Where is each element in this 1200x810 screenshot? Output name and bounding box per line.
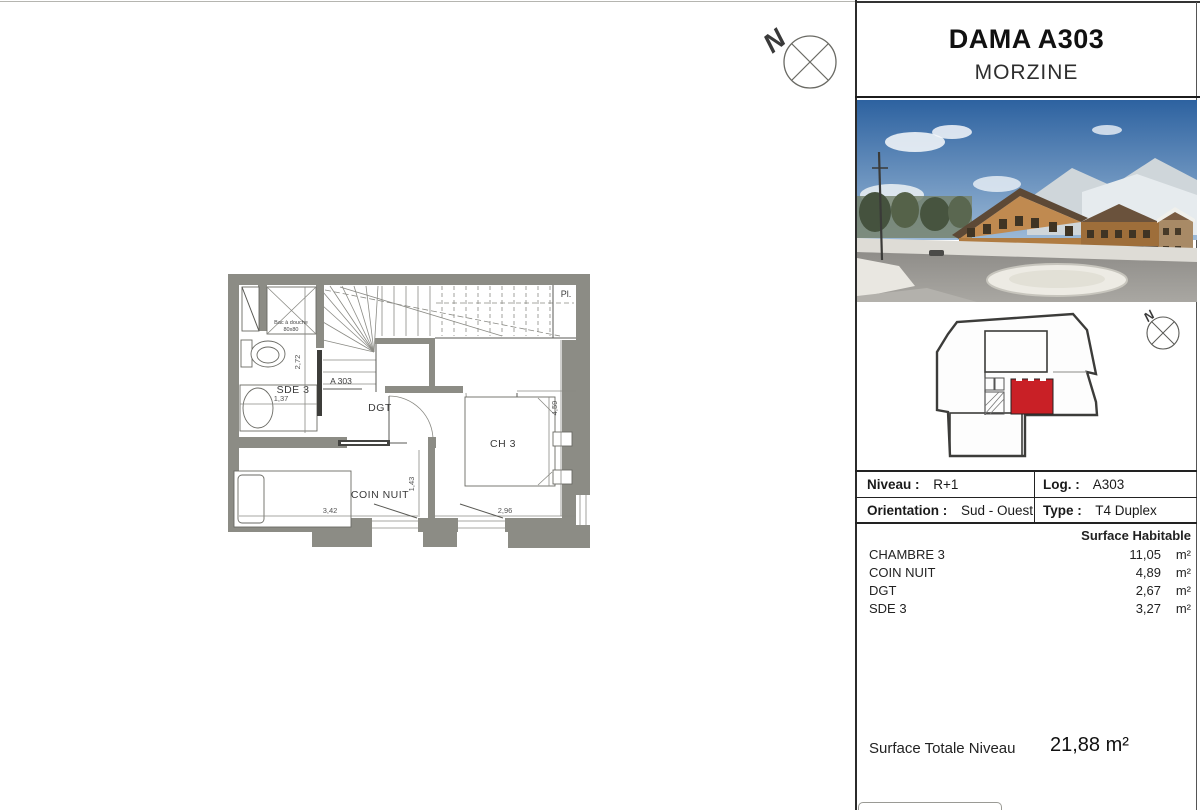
table-row: Niveau : R+1 Log. : A303	[855, 472, 1197, 497]
sheet-subtitle: MORZINE	[857, 61, 1196, 85]
floor-plan: Pl. Bac à douche 80x80 SDE 3 1,37 2,72 A	[210, 258, 610, 558]
shower-label: Bac à douche	[274, 320, 308, 326]
hallway-dgt: A 303 DGT	[317, 350, 433, 440]
room-area: 3,27	[1117, 600, 1161, 618]
room-area: 2,67	[1117, 582, 1161, 600]
unit-door-label: A 303	[330, 376, 352, 386]
site-compass-icon: N	[1141, 307, 1179, 349]
niveau-value: R+1	[933, 477, 958, 492]
room-name: COIN NUIT	[855, 564, 1117, 582]
coin-nuit: COIN NUIT 1,43 3,42	[234, 440, 419, 527]
surface-list: Surface Habitable CHAMBRE 3 11,05 m² COI…	[855, 528, 1195, 618]
room-name: SDE 3	[855, 600, 1117, 618]
room-label-coin-nuit: COIN NUIT	[351, 489, 409, 501]
room-area-unit: m²	[1161, 546, 1195, 564]
door-swing-dgt	[389, 396, 433, 440]
orientation-value: Sud - Ouest	[961, 503, 1033, 518]
surface-list-header: Surface Habitable	[855, 528, 1195, 543]
list-item: COIN NUIT 4,89 m²	[855, 564, 1195, 582]
room-area: 4,89	[1117, 564, 1161, 582]
total-surface-label: Surface Totale Niveau	[869, 740, 1015, 757]
room-area-unit: m²	[1161, 600, 1195, 618]
dim-coin-nuit-width: 3,42	[323, 506, 338, 515]
room-name: CHAMBRE 3	[855, 546, 1117, 564]
entrance-door-leaf	[317, 350, 322, 416]
bathroom-sde3: Bac à douche 80x80 SDE 3 1,37 2,72	[240, 287, 317, 433]
room-label-ch3: CH 3	[490, 438, 516, 450]
nightstand	[553, 432, 572, 446]
room-area-unit: m²	[1161, 564, 1195, 582]
toilet-tank	[241, 340, 252, 367]
niveau-label: Niveau :	[867, 477, 920, 492]
sheet-title: DAMA A303	[857, 24, 1196, 55]
list-item: CHAMBRE 3 11,05 m²	[855, 546, 1195, 564]
dim-ch3-depth: 4,59	[550, 401, 559, 416]
north-compass-icon: N	[750, 12, 865, 112]
nightstand	[553, 470, 572, 484]
title-block: DAMA A303 MORZINE	[857, 24, 1196, 85]
dim-sde3-depth: 2,72	[293, 355, 302, 370]
type-label: Type :	[1043, 503, 1082, 518]
compass-north-label: N	[758, 23, 792, 59]
closet-label: Pl.	[561, 289, 572, 299]
list-item: DGT 2,67 m²	[855, 582, 1195, 600]
shower-size-label: 80x80	[284, 327, 299, 333]
highlighted-unit	[1011, 379, 1053, 414]
dim-ch3-width: 2,96	[498, 506, 513, 515]
log-label: Log. :	[1043, 477, 1080, 492]
site-compass-north-label: N	[1141, 307, 1158, 325]
dim-coin-nuit-depth: 1,43	[407, 477, 416, 492]
room-area: 11,05	[1117, 546, 1161, 564]
cropped-box-edge	[858, 802, 1002, 810]
panel-top-edge	[855, 1, 1200, 3]
title-divider	[855, 96, 1200, 98]
log-value: A303	[1093, 477, 1125, 492]
room-name: DGT	[855, 582, 1117, 600]
room-area-unit: m²	[1161, 582, 1195, 600]
building-photo	[857, 100, 1197, 302]
staircase	[323, 286, 574, 392]
orientation-label: Orientation :	[867, 503, 947, 518]
type-value: T4 Duplex	[1095, 503, 1157, 518]
washbasin	[243, 388, 273, 428]
dim-sde3-width: 1,37	[274, 394, 289, 403]
plan-sheet: N	[0, 0, 1200, 810]
unit-info-table: Niveau : R+1 Log. : A303 Orientation : S…	[855, 470, 1197, 524]
total-surface-value: 21,88 m²	[1050, 734, 1129, 757]
list-item: SDE 3 3,27 m²	[855, 600, 1195, 618]
room-label-dgt: DGT	[368, 402, 392, 414]
table-row: Orientation : Sud - Ouest Type : T4 Dupl…	[855, 497, 1197, 523]
key-site-plan: N	[900, 306, 1200, 468]
closet: Pl.	[553, 285, 576, 338]
